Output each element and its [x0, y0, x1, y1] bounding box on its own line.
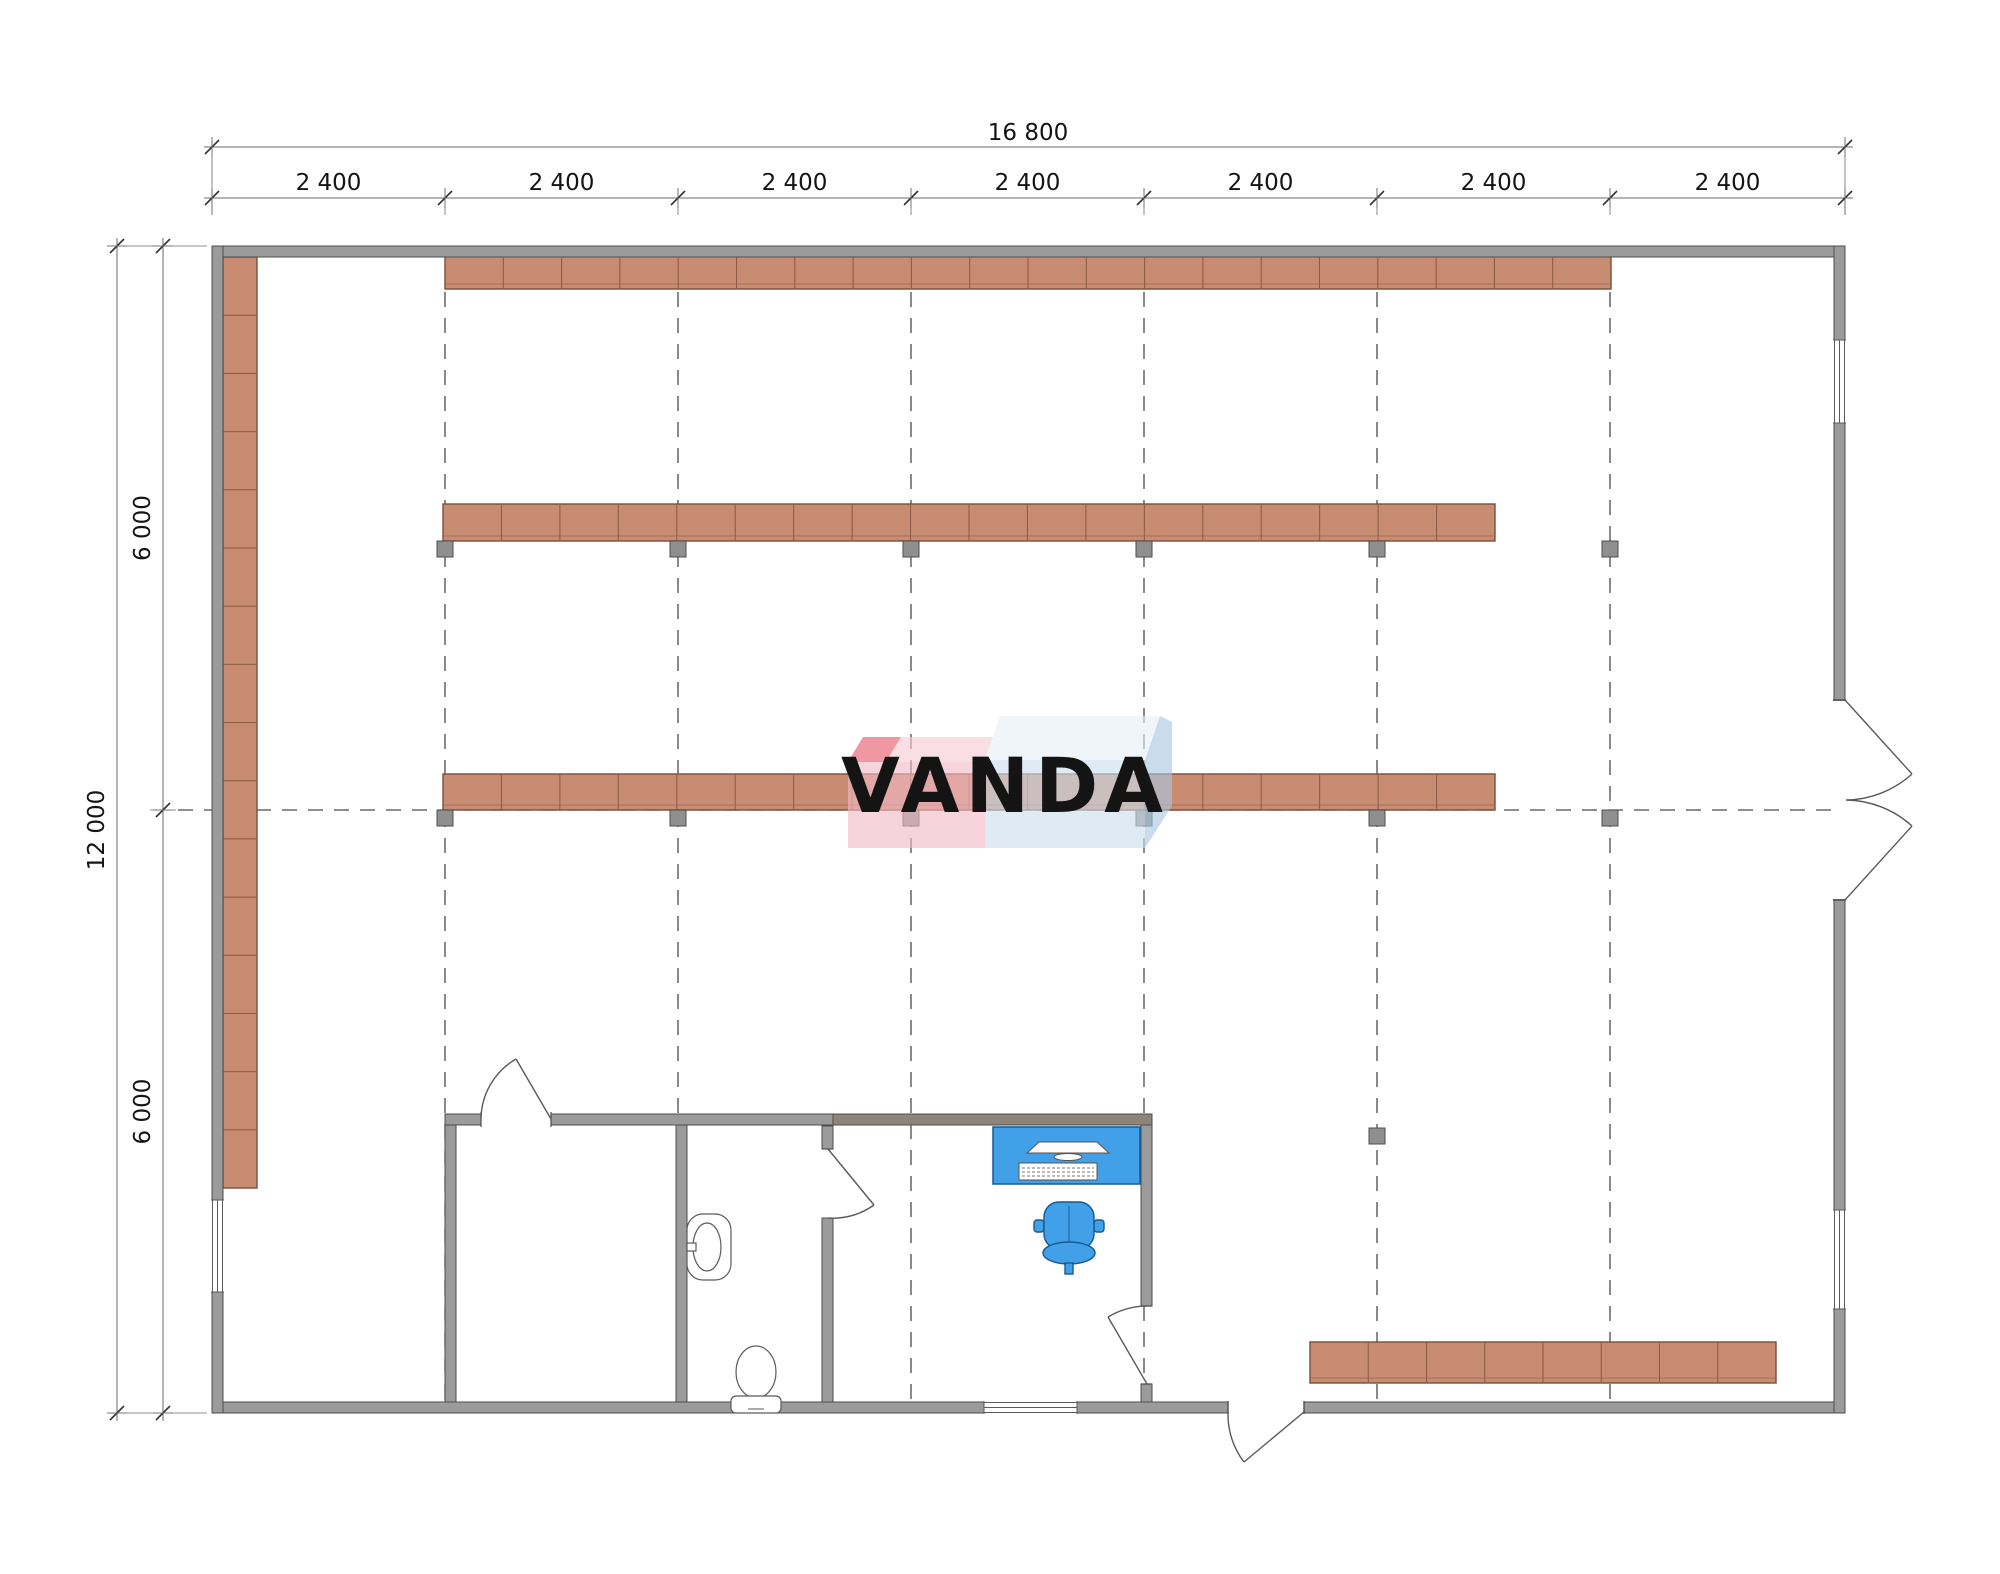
dim-label: 2 400: [296, 170, 362, 196]
office-door-opening: [481, 1112, 551, 1127]
dim-label: 2 400: [762, 170, 828, 196]
toilet: [731, 1346, 781, 1413]
dim-total-height-label: 12 000: [84, 790, 110, 870]
window-right-wall-upper: [1832, 340, 1847, 423]
dim-label: 6 000: [130, 1079, 156, 1145]
structural-column: [1602, 810, 1618, 826]
office-chair: [1034, 1202, 1104, 1274]
office-door-leaf: [481, 1059, 551, 1119]
structural-column: [903, 541, 919, 557]
toilet-bowl: [736, 1346, 776, 1398]
dim-label: 2 400: [1695, 170, 1761, 196]
window-left-wall: [210, 1200, 225, 1292]
chair-stem: [1065, 1263, 1073, 1274]
exterior-door-leaf: [1228, 1412, 1304, 1462]
sink-tap: [687, 1243, 696, 1251]
structural-column: [670, 810, 686, 826]
bathroom-right-wall: [822, 1218, 833, 1402]
monitor-icon: [1027, 1142, 1109, 1153]
office-top-wall-right: [833, 1114, 1152, 1125]
structural-column: [1369, 1128, 1385, 1144]
left-wall-rack: [223, 257, 257, 1188]
wall-top: [212, 246, 1845, 257]
top-rack: [445, 256, 1611, 289]
structural-column: [437, 541, 453, 557]
sink-basin: [693, 1223, 721, 1271]
window-bottom-wall: [984, 1400, 1077, 1415]
structural-column: [1369, 810, 1385, 826]
structural-column: [1602, 541, 1618, 557]
chair-base: [1043, 1242, 1095, 1264]
dim-label: 2 400: [529, 170, 595, 196]
structural-column: [1136, 541, 1152, 557]
exterior-door-bottom-wall: [1228, 1400, 1304, 1462]
bathroom-left-wall: [676, 1125, 687, 1402]
vanda-logo: VANDA: [841, 716, 1172, 848]
monitor-stand: [1054, 1154, 1082, 1161]
office-partition-wall: [1141, 1125, 1152, 1306]
toilet-tank: [731, 1396, 781, 1413]
upper-middle-rack: [443, 504, 1495, 541]
dim-label: 6 000: [130, 495, 156, 561]
bathroom-door-leaf: [828, 1149, 874, 1218]
double-door-right-wall: [1832, 700, 1912, 900]
window-right-wall-lower: [1832, 1210, 1847, 1309]
logo-text: VANDA: [841, 741, 1169, 830]
structural-column: [670, 541, 686, 557]
floor-plan-drawing: VANDA 2 4002 4002 4002 4002 4002 4002 40…: [0, 0, 2000, 1574]
dim-label: 2 400: [995, 170, 1061, 196]
chair-armrest-left: [1034, 1220, 1044, 1232]
office-desk: [993, 1127, 1140, 1184]
chair-armrest-right: [1094, 1220, 1104, 1232]
double-door-leaves: [1845, 700, 1912, 900]
structural-column: [1369, 541, 1385, 557]
floor-plan-canvas: VANDA 2 4002 4002 4002 4002 4002 4002 40…: [0, 0, 2000, 1574]
dim-label: 2 400: [1228, 170, 1294, 196]
structural-column: [437, 810, 453, 826]
dim-label: 2 400: [1461, 170, 1527, 196]
partition-door-leaf: [1108, 1306, 1147, 1384]
bathroom-sink: [687, 1214, 731, 1280]
office-partition-stub: [1141, 1384, 1152, 1402]
bathroom-right-wall-stub: [822, 1126, 833, 1149]
office-left-wall: [445, 1125, 456, 1402]
bottom-right-rack: [1310, 1342, 1776, 1383]
dim-total-width-label: 16 800: [988, 120, 1068, 146]
